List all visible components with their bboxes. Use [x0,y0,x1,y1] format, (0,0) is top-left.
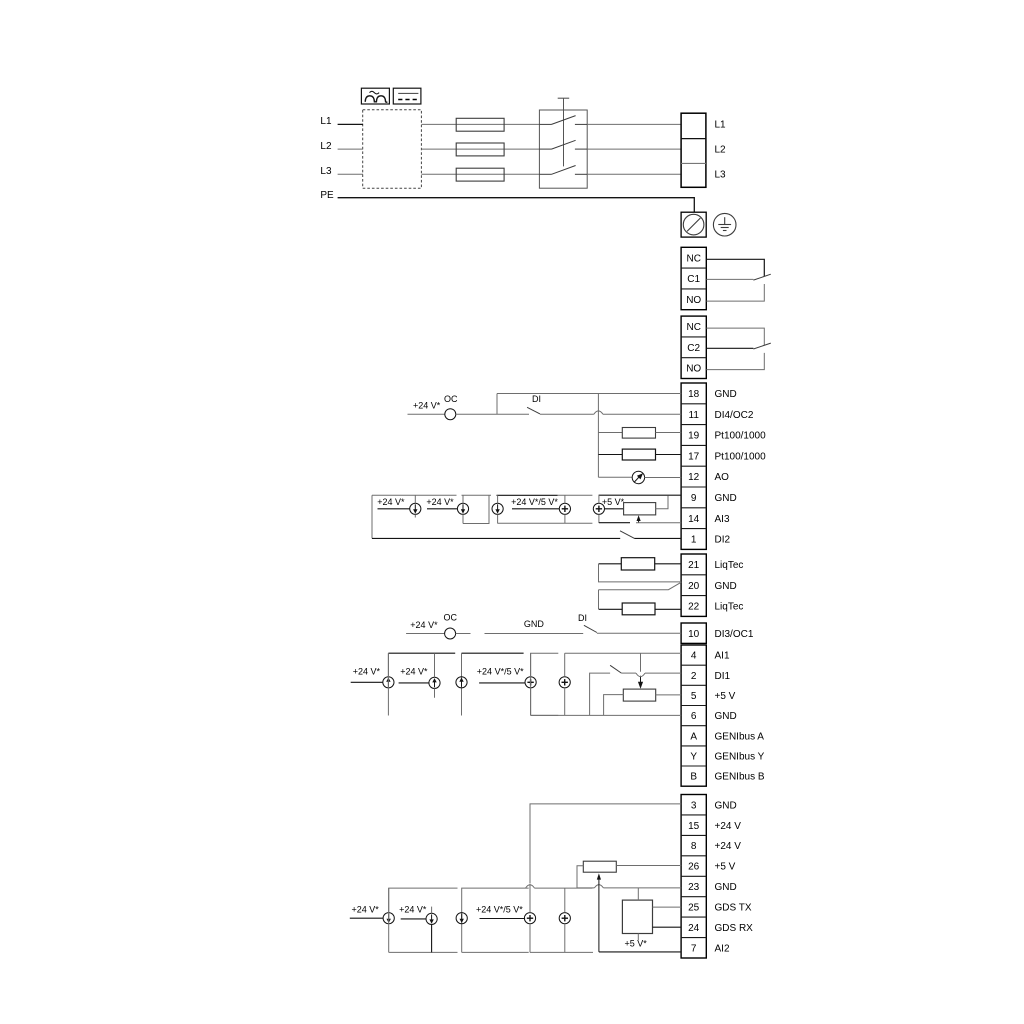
svg-text:AO: AO [715,472,730,483]
svg-text:22: 22 [688,602,700,613]
svg-text:L3: L3 [715,169,727,180]
svg-text:+24 V*: +24 V* [377,497,405,507]
svg-text:+24 V*: +24 V* [352,904,380,914]
svg-text:+5 V: +5 V [715,862,736,873]
svg-text:+24 V*: +24 V* [413,400,441,410]
svg-text:NC: NC [686,322,700,333]
svg-text:DI1: DI1 [715,671,731,682]
svg-text:+24 V: +24 V [715,841,742,852]
svg-text:OC: OC [444,613,458,623]
svg-text:L1: L1 [715,119,727,130]
svg-text:25: 25 [688,903,700,914]
svg-text:26: 26 [688,862,700,873]
svg-text:NC: NC [686,253,700,264]
svg-text:+24 V*/5 V*: +24 V*/5 V* [511,497,558,507]
svg-text:19: 19 [688,431,700,442]
svg-text:C1: C1 [687,274,700,285]
svg-text:GND: GND [715,389,737,400]
svg-text:+24 V: +24 V [715,821,742,832]
svg-text:23: 23 [688,882,700,893]
svg-text:B: B [690,772,697,783]
svg-text:+5 V*: +5 V* [602,497,625,507]
svg-text:+24 V*: +24 V* [353,667,381,677]
svg-text:L3: L3 [320,166,332,177]
svg-text:L2: L2 [320,141,332,152]
svg-text:GND: GND [715,493,737,504]
svg-text:11: 11 [689,410,700,421]
svg-text:PE: PE [320,190,334,201]
svg-text:15: 15 [688,821,700,832]
svg-text:L1: L1 [320,116,332,127]
svg-text:C2: C2 [687,343,700,354]
svg-text:Pt100/1000: Pt100/1000 [715,451,767,462]
svg-text:NO: NO [686,295,701,306]
svg-text:1: 1 [691,535,697,546]
svg-text:GND: GND [524,619,545,629]
svg-text:OC: OC [444,394,458,404]
svg-text:Y: Y [690,752,697,763]
svg-text:LiqTec: LiqTec [715,602,744,613]
svg-text:GENIbus B: GENIbus B [715,772,765,783]
svg-text:12: 12 [688,472,700,483]
svg-text:+5 V: +5 V [715,691,736,702]
svg-text:5: 5 [691,691,697,702]
svg-text:DI: DI [578,613,587,623]
svg-text:7: 7 [691,943,697,954]
svg-text:20: 20 [688,581,700,592]
svg-text:AI1: AI1 [715,651,730,662]
svg-text:DI3/OC1: DI3/OC1 [715,629,754,640]
svg-text:14: 14 [688,514,700,525]
svg-text:10: 10 [688,629,700,640]
svg-text:9: 9 [691,493,697,504]
svg-text:6: 6 [691,711,697,722]
svg-text:DI2: DI2 [715,535,731,546]
svg-text:AI3: AI3 [715,514,730,525]
svg-text:+24 V*/5 V*: +24 V*/5 V* [477,667,524,677]
svg-text:18: 18 [688,389,700,400]
svg-text:GND: GND [715,711,737,722]
svg-text:+24 V*: +24 V* [410,620,438,630]
svg-text:NO: NO [686,364,701,375]
svg-text:3: 3 [691,800,697,811]
svg-text:24: 24 [688,923,700,934]
svg-text:17: 17 [688,451,700,462]
svg-text:A: A [690,731,697,742]
svg-text:+5 V*: +5 V* [625,939,648,949]
svg-text:4: 4 [691,651,697,662]
svg-text:+24 V*: +24 V* [399,904,427,914]
svg-text:GDS TX: GDS TX [715,903,752,914]
svg-text:DI4/OC2: DI4/OC2 [715,410,754,421]
svg-text:+24 V*: +24 V* [400,667,428,677]
svg-text:GND: GND [715,882,737,893]
svg-text:GENIbus Y: GENIbus Y [715,752,765,763]
svg-text:8: 8 [691,841,697,852]
svg-text:GENIbus A: GENIbus A [715,731,765,742]
svg-text:+24 V*/5 V*: +24 V*/5 V* [476,904,523,914]
svg-text:DI: DI [532,394,541,404]
svg-text:GND: GND [715,800,737,811]
svg-text:AI2: AI2 [715,943,730,954]
svg-text:2: 2 [691,671,697,682]
svg-text:LiqTec: LiqTec [715,560,744,571]
svg-text:+24 V*: +24 V* [426,497,454,507]
svg-text:Pt100/1000: Pt100/1000 [715,431,767,442]
svg-text:GND: GND [715,581,737,592]
svg-text:21: 21 [688,560,700,571]
svg-text:GDS RX: GDS RX [715,923,754,934]
svg-text:L2: L2 [715,144,727,155]
